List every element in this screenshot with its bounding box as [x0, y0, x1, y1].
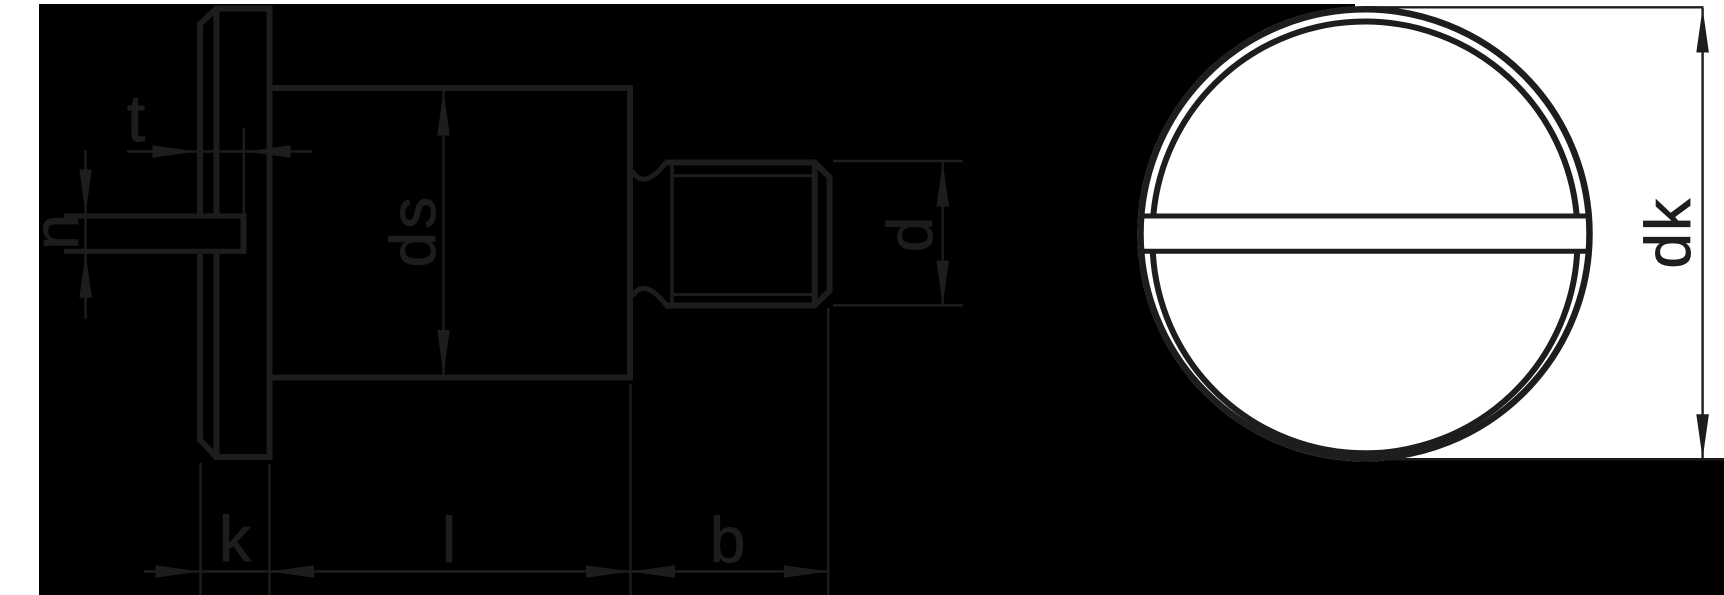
svg-text:b: b	[710, 504, 746, 576]
svg-text:n: n	[20, 214, 92, 250]
svg-text:dk: dk	[1632, 197, 1704, 269]
svg-text:t: t	[127, 81, 145, 155]
svg-text:k: k	[219, 503, 252, 575]
svg-text:ds: ds	[377, 194, 449, 268]
svg-text:d: d	[874, 217, 946, 253]
svg-text:l: l	[442, 504, 456, 576]
